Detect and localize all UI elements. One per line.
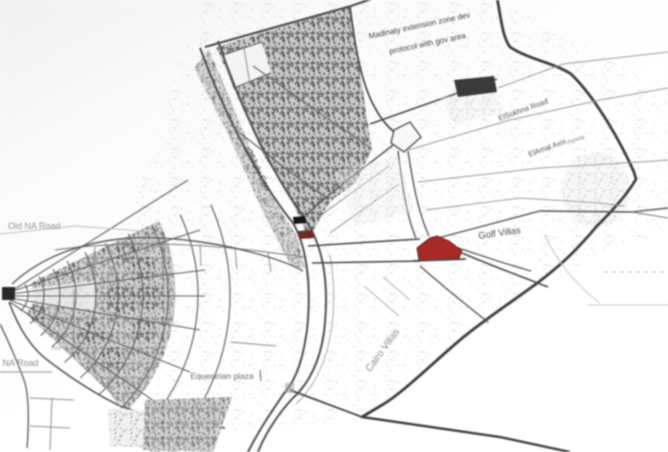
svg-text:Old NA Road: Old NA Road [0,358,39,368]
svg-text:nrd: nrd [52,346,61,352]
svg-text:Equestrian plaza: Equestrian plaza [190,371,254,381]
svg-text:Old NA Road: Old NA Road [8,221,61,231]
